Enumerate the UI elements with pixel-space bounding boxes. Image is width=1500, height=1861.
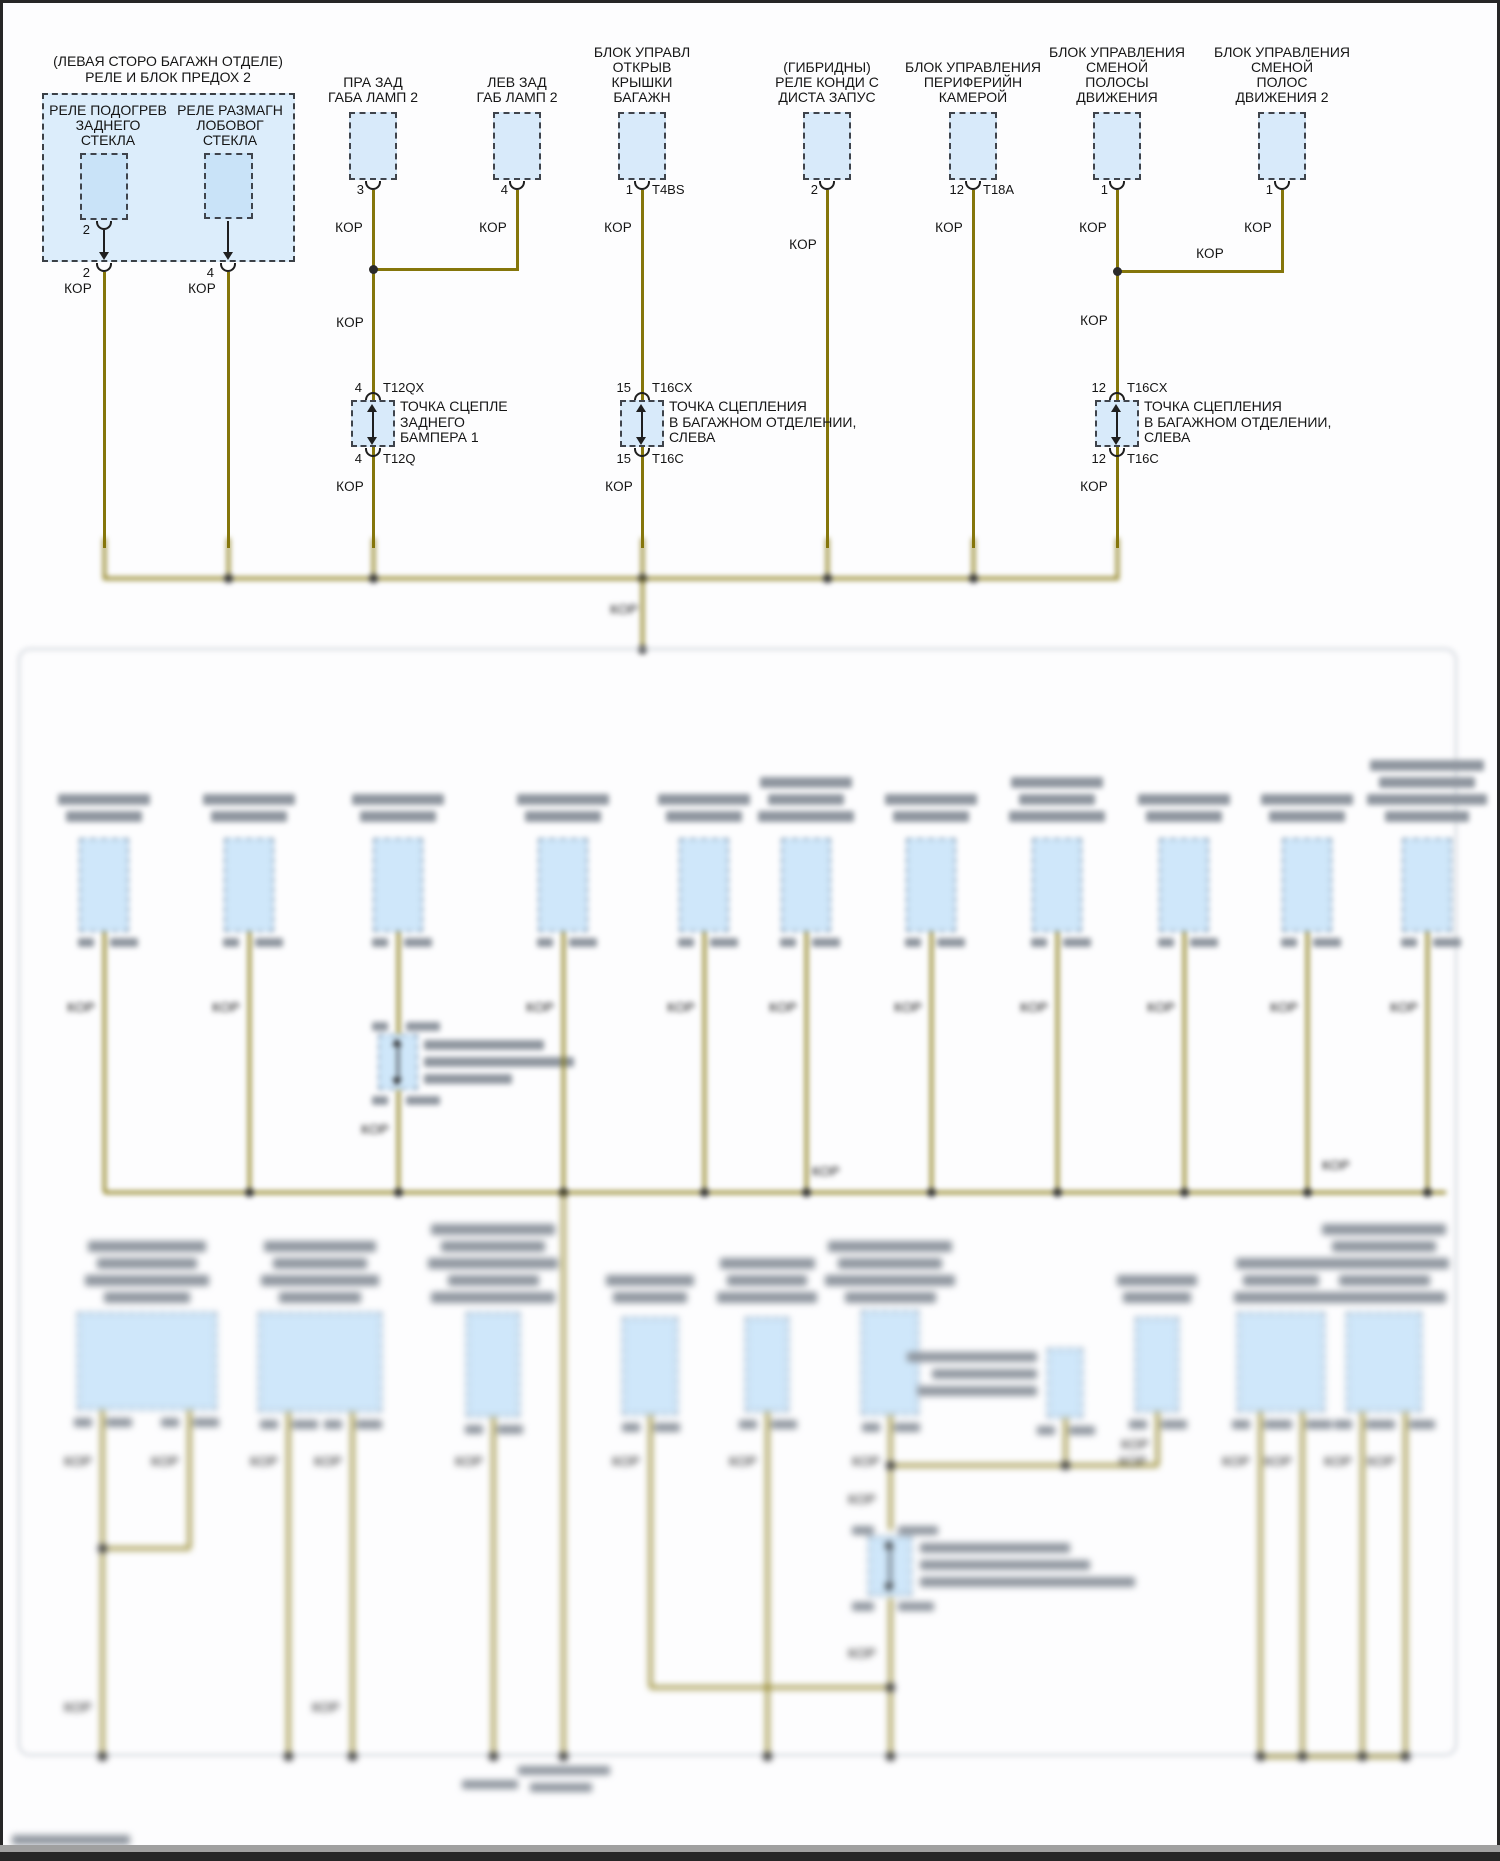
splice-trunk-left-right-description: В БАГАЖНОМ ОТДЕЛЕНИИ, <box>1144 415 1404 430</box>
liftgate-control-module-connector-code: T4BS <box>652 182 722 197</box>
lane-change-control-module-label: ПОЛОСЫ <box>1039 75 1195 90</box>
splice-trunk-left-right-description: ТОЧКА СЦЕПЛЕНИЯ <box>1144 399 1404 414</box>
blurred-component-label <box>279 1292 362 1303</box>
blurred-component-label <box>104 1292 191 1303</box>
windshield-demag-relay-label-line2: ЛОБОВОГ <box>168 118 292 133</box>
right-rear-marker-lamp-2-pin: 3 <box>326 182 364 197</box>
splice-trunk-left-mid-code-top: T16CX <box>652 380 722 395</box>
relay-fuse-block-title-line1: (ЛЕВАЯ СТОРО БАГАЖН ОТДЕЛЕ) <box>28 54 308 69</box>
wire-color-label: КОР <box>1069 220 1107 235</box>
wire-color-label: КОР <box>1186 246 1234 261</box>
blurred-component-box <box>1135 1317 1179 1412</box>
blurred-pin-label <box>1306 1420 1332 1429</box>
blurred-wire-label: КОР <box>56 1454 92 1469</box>
wire-kor <box>826 190 829 548</box>
hybrid-remote-start-ac-relay-label: РЕЛЕ КОНДИ С <box>749 75 905 90</box>
relay2-exit-pin: 4 <box>194 265 214 280</box>
splice-trunk-left-right-description: СЛЕВА <box>1144 430 1404 445</box>
junction-dot <box>348 1752 357 1761</box>
blurred-pin-label <box>852 1602 874 1611</box>
hybrid-remote-start-ac-relay-pin: 2 <box>780 182 818 197</box>
blurred-wire-label: КОР <box>447 1454 483 1469</box>
wire-kor <box>492 1417 495 1756</box>
double-arrow-icon <box>884 1540 894 1548</box>
blurred-pin-label <box>74 1418 92 1427</box>
surround-camera-module-connector-code: T18A <box>983 182 1053 197</box>
splice-trunk-left-mid-pin-bottom: 15 <box>593 451 631 466</box>
blurred-splice-label <box>920 1543 1070 1553</box>
junction-dot <box>1358 1752 1367 1761</box>
double-arrow-icon <box>1111 404 1121 412</box>
liftgate-control-module-label: БЛОК УПРАВЛ <box>564 45 720 60</box>
wire-color-label: КОР <box>469 220 507 235</box>
blurred-component-label <box>85 1275 209 1286</box>
double-arrow-icon <box>367 404 377 412</box>
blurred-pin-label <box>1377 1420 1395 1429</box>
junction-dot <box>369 265 378 274</box>
blurred-component-label <box>1123 1292 1191 1303</box>
wire-kor <box>649 1415 652 1687</box>
lane-change-control-module-2-label: ДВИЖЕНИЯ 2 <box>1204 90 1360 105</box>
surround-camera-module-label: ПЕРИФЕРИЙН <box>895 75 1051 90</box>
blurred-component-label <box>88 1241 206 1252</box>
wire-kor <box>562 1192 565 1756</box>
wire-kor <box>1260 1755 1406 1758</box>
blurred-wire-label: КОР <box>1113 1437 1149 1452</box>
wire-kor <box>1404 1412 1407 1756</box>
wire-color-label: КОР <box>779 237 817 252</box>
blurred-component-box <box>1237 1312 1325 1412</box>
blurred-wire-label: КОР <box>1214 1454 1250 1469</box>
liftgate-control-module-box <box>618 112 666 180</box>
blurred-component-label <box>727 1275 807 1286</box>
blurred-component-box <box>745 1317 789 1412</box>
right-rear-marker-lamp-2-box <box>349 112 397 180</box>
blurred-pin-label <box>654 1423 680 1432</box>
frame-left <box>0 0 3 1861</box>
blurred-component-label <box>1322 1292 1446 1303</box>
blurred-component-label <box>613 1292 687 1303</box>
junction-dot <box>489 1752 498 1761</box>
wire-kor <box>889 1598 892 1756</box>
junction-dot <box>1113 267 1122 276</box>
blurred-pin-label <box>771 1420 797 1429</box>
blurred-splice-label <box>907 1352 1037 1362</box>
blurred-wire-label: КОР <box>1359 1454 1395 1469</box>
splice-trunk-left-mid-description: СЛЕВА <box>669 430 929 445</box>
wire-kor <box>641 190 644 548</box>
lane-change-control-module-label: СМЕНОЙ <box>1039 60 1195 75</box>
junction-dot <box>1256 1752 1265 1761</box>
windshield-demag-relay-label-line3: СТЕКЛА <box>168 133 292 148</box>
junction-dot <box>886 1461 895 1470</box>
splice-trunk-left-mid-description: В БАГАЖНОМ ОТДЕЛЕНИИ, <box>669 415 929 430</box>
relay1-exit-pin: 2 <box>70 265 90 280</box>
blurred-watermark <box>12 1835 130 1845</box>
blurred-component-label <box>1322 1224 1446 1235</box>
blurred-ground-label <box>462 1780 518 1789</box>
lane-change-control-module-2-box <box>1258 112 1306 180</box>
arrow-down-icon <box>99 252 109 260</box>
frame-bottom-shadow <box>0 1845 1500 1852</box>
blurred-pin-label <box>497 1425 523 1434</box>
wire-kor <box>102 1547 190 1550</box>
wire-color-label: КОР <box>594 220 632 235</box>
blurred-component-label <box>441 1241 545 1252</box>
liftgate-control-module-label: КРЫШКИ <box>564 75 720 90</box>
blurred-component-label <box>1243 1275 1319 1286</box>
hybrid-remote-start-ac-relay-box <box>803 112 851 180</box>
lane-change-control-module-2-label: ПОЛОС <box>1204 75 1360 90</box>
wire-color-label: КОР <box>326 315 364 330</box>
wire-kor <box>1117 270 1284 273</box>
surround-camera-module-pin: 12 <box>926 182 964 197</box>
blurred-pin-label <box>292 1420 318 1429</box>
blurred-wire-label: КОР <box>838 1646 876 1661</box>
wire-kor <box>650 1686 890 1689</box>
blurred-component-label <box>1339 1275 1430 1286</box>
blurred-pin-label <box>898 1602 934 1611</box>
lane-change-control-module-2-label: БЛОК УПРАВЛЕНИЯ <box>1204 45 1360 60</box>
splice-trunk-left-right-code-top: T16CX <box>1127 380 1197 395</box>
blurred-splice-label <box>920 1577 1135 1587</box>
splice-trunk-left-mid-code-bottom: T16C <box>652 451 722 466</box>
wire-kor <box>1064 1418 1067 1465</box>
blurred-component-label <box>828 1241 952 1252</box>
lane-change-control-module-box <box>1093 112 1141 180</box>
splice-rear-bumper-code-bottom: T12Q <box>383 451 453 466</box>
blurred-pin-label <box>324 1420 342 1429</box>
blurred-wire-label: КОР <box>1316 1454 1352 1469</box>
wire-kor <box>972 190 975 548</box>
blurred-component-label <box>1234 1292 1329 1303</box>
blurred-pin-label <box>862 1423 880 1432</box>
blurred-component-label <box>431 1292 555 1303</box>
lane-change-control-module-label: ДВИЖЕНИЯ <box>1039 90 1195 105</box>
liftgate-control-module-label: БАГАЖН <box>564 90 720 105</box>
junction-dot <box>1298 1752 1307 1761</box>
blurred-wire-label: КОР <box>1111 1454 1147 1469</box>
blurred-pin-label <box>260 1420 278 1429</box>
wire-color-label: КОР <box>326 479 364 494</box>
junction-dot <box>886 1752 895 1761</box>
splice-rear-bumper-pin-top: 4 <box>324 380 362 395</box>
wire-color-label: КОР <box>595 479 633 494</box>
wire-kor <box>188 1410 191 1548</box>
wire-color-label: КОР <box>1234 220 1272 235</box>
splice-rear-bumper-code-top: T12QX <box>383 380 453 395</box>
blurred-wire-label: КОР <box>604 1454 640 1469</box>
blurred-component-label <box>428 1258 558 1269</box>
wire-kor <box>1156 1412 1159 1465</box>
blurred-pin-label <box>1409 1420 1435 1429</box>
blurred-wire-label: КОР <box>844 1454 880 1469</box>
wire-kor <box>1281 190 1284 273</box>
splice-trunk-left-right-pin-top: 12 <box>1068 380 1106 395</box>
wire-color-label: КОР <box>182 281 222 296</box>
blurred-wire-label: КОР <box>721 1454 757 1469</box>
blurred-wire-label: КОР <box>1256 1454 1292 1469</box>
splice-trunk-left-right-code-bottom: T16C <box>1127 451 1197 466</box>
hybrid-remote-start-ac-relay-label: (ГИБРИДНЫ) <box>749 60 905 75</box>
wire-kor <box>1116 190 1119 548</box>
rear-defog-relay-box <box>80 153 128 220</box>
diagram-blurred-bottom-section: КОРКОРКОРКОРКОРКОРКОРКОРКОРКОРКОРКОРКОРК… <box>0 0 1500 1861</box>
wire-kor <box>372 190 375 548</box>
blurred-component-label <box>720 1258 815 1269</box>
rear-defog-relay-inner-pin: 2 <box>70 222 90 237</box>
splice-trunk-left-right-pin-bottom: 12 <box>1068 451 1106 466</box>
double-arrow-icon <box>372 410 374 439</box>
blurred-wire-label: КОР <box>64 1700 102 1715</box>
blurred-wire-label: КОР <box>306 1454 342 1469</box>
blurred-component-label <box>431 1224 555 1235</box>
blurred-component-label <box>448 1275 539 1286</box>
blurred-component-box <box>1346 1312 1422 1412</box>
blurred-ground-label <box>530 1783 592 1792</box>
blurred-component-box <box>622 1317 678 1415</box>
blurred-component-label <box>273 1258 367 1269</box>
blurred-pin-label <box>161 1418 179 1427</box>
windshield-demag-relay-box <box>204 153 253 219</box>
blurred-pin-label <box>465 1425 483 1434</box>
wire-color-label: КОР <box>1070 479 1108 494</box>
splice-trunk-left-mid-description: ТОЧКА СЦЕПЛЕНИЯ <box>669 399 929 414</box>
blurred-pin-label <box>1334 1420 1352 1429</box>
wire-kor <box>351 1412 354 1756</box>
right-rear-marker-lamp-2-label: ПРА ЗАД <box>295 75 451 90</box>
junction-dot <box>763 1752 772 1761</box>
right-rear-marker-lamp-2-label: ГАБА ЛАМП 2 <box>295 90 451 105</box>
hybrid-remote-start-ac-relay-label: ДИСТА ЗАПУС <box>749 90 905 105</box>
double-arrow-icon <box>367 437 377 445</box>
blurred-component-label <box>717 1292 817 1303</box>
wire-kor <box>103 272 106 548</box>
wire-color-label: КОР <box>1070 313 1108 328</box>
wire-color-label: КОР <box>925 220 963 235</box>
double-arrow-icon <box>884 1584 894 1592</box>
double-arrow-icon <box>641 410 643 439</box>
blurred-wire-label: КОР <box>838 1492 876 1507</box>
junction-dot <box>98 1752 107 1761</box>
splice-rear-bumper-pin-bottom: 4 <box>324 451 362 466</box>
blurred-pin-label <box>356 1420 382 1429</box>
wire-kor <box>766 1412 769 1756</box>
double-arrow-icon <box>1111 437 1121 445</box>
blurred-pin-label <box>739 1420 757 1429</box>
blurred-wire-label: КОР <box>143 1454 179 1469</box>
blurred-pin-label <box>1232 1420 1250 1429</box>
blurred-component-box <box>77 1312 217 1410</box>
blurred-component-label <box>825 1275 955 1286</box>
blurred-component-label <box>97 1258 196 1269</box>
liftgate-control-module-pin: 1 <box>595 182 633 197</box>
wire-kor <box>889 1415 892 1530</box>
blurred-wire-label: КОР <box>242 1454 278 1469</box>
blurred-component-label <box>261 1275 379 1286</box>
blurred-component-box <box>258 1312 382 1412</box>
junction-dot <box>1061 1461 1070 1470</box>
wire-kor <box>227 272 230 548</box>
blurred-pin-label <box>1037 1426 1055 1435</box>
blurred-pin-label <box>852 1526 874 1535</box>
liftgate-control-module-label: ОТКРЫВ <box>564 60 720 75</box>
rear-defog-relay-label-line2: ЗАДНЕГО <box>46 118 170 133</box>
arrow-down-icon <box>103 230 105 253</box>
blurred-component-label <box>606 1275 693 1286</box>
lane-change-control-module-pin: 1 <box>1070 182 1108 197</box>
wire-color-label: КОР <box>325 220 363 235</box>
double-arrow-icon <box>636 437 646 445</box>
junction-dot <box>98 1544 107 1553</box>
wire-kor <box>287 1412 290 1756</box>
blurred-pin-label <box>622 1423 640 1432</box>
double-arrow-icon <box>889 1546 891 1586</box>
lane-change-control-module-2-pin: 1 <box>1235 182 1273 197</box>
blurred-component-label <box>1117 1275 1198 1286</box>
blurred-component-label <box>1319 1258 1449 1269</box>
left-rear-marker-lamp-2-box <box>493 112 541 180</box>
double-arrow-icon <box>636 404 646 412</box>
surround-camera-module-label: БЛОК УПРАВЛЕНИЯ <box>895 60 1051 75</box>
double-arrow-icon <box>1116 410 1118 439</box>
blurred-splice-label <box>917 1386 1037 1396</box>
surround-camera-module-box <box>949 112 997 180</box>
wiring-diagram-page: КОРКОРКОРКОРКОРКОРКОРКОРКОРКОРКОРКОРКОРК… <box>0 0 1500 1861</box>
blurred-component-label <box>1332 1241 1436 1252</box>
wire-kor <box>373 268 519 271</box>
blurred-component-label <box>845 1292 936 1303</box>
wire-kor <box>1301 1412 1304 1756</box>
blurred-component-label <box>264 1241 376 1252</box>
blurred-wire-label: КОР <box>312 1700 350 1715</box>
windshield-demag-relay-label-line1: РЕЛЕ РАЗМАГН <box>168 103 292 118</box>
wire-color-label: КОР <box>58 281 98 296</box>
junction-dot <box>886 1683 895 1692</box>
arrow-down-icon <box>227 221 229 252</box>
blurred-component-label <box>1236 1258 1326 1269</box>
surround-camera-module-label: КАМЕРОЙ <box>895 90 1051 105</box>
blurred-pin-label <box>193 1418 219 1427</box>
blurred-splice-label <box>920 1560 1090 1570</box>
blurred-component-label <box>838 1258 942 1269</box>
lane-change-control-module-2-label: СМЕНОЙ <box>1204 60 1360 75</box>
rear-defog-relay-label-line1: РЕЛЕ ПОДОГРЕВ <box>46 103 170 118</box>
wire-kor <box>516 190 519 271</box>
blurred-component-box <box>861 1310 919 1415</box>
junction-dot <box>284 1752 293 1761</box>
arrow-down-icon <box>223 252 233 260</box>
junction-dot <box>559 1752 568 1761</box>
lane-change-control-module-label: БЛОК УПРАВЛЕНИЯ <box>1039 45 1195 60</box>
blurred-pin-label <box>894 1423 920 1432</box>
blurred-splice-label <box>932 1369 1037 1379</box>
blurred-pin-label <box>898 1526 938 1535</box>
splice-trunk-left-mid-pin-top: 15 <box>593 380 631 395</box>
blurred-pin-label <box>1161 1420 1187 1429</box>
relay-fuse-block-title-line2: РЕЛЕ И БЛОК ПРЕДОХ 2 <box>28 70 308 85</box>
blurred-component-box <box>1047 1348 1083 1418</box>
blurred-ground-label <box>518 1766 610 1775</box>
frame-bottom <box>0 1852 1500 1861</box>
blurred-pin-label <box>1129 1420 1147 1429</box>
blurred-pin-label <box>1069 1426 1095 1435</box>
blurred-pin-label <box>1274 1420 1292 1429</box>
blurred-component-box <box>466 1312 520 1417</box>
junction-dot <box>1401 1752 1410 1761</box>
blurred-pin-label <box>106 1418 132 1427</box>
rear-defog-relay-label-line3: СТЕКЛА <box>46 133 170 148</box>
frame-top <box>0 0 1500 3</box>
left-rear-marker-lamp-2-pin: 4 <box>470 182 508 197</box>
